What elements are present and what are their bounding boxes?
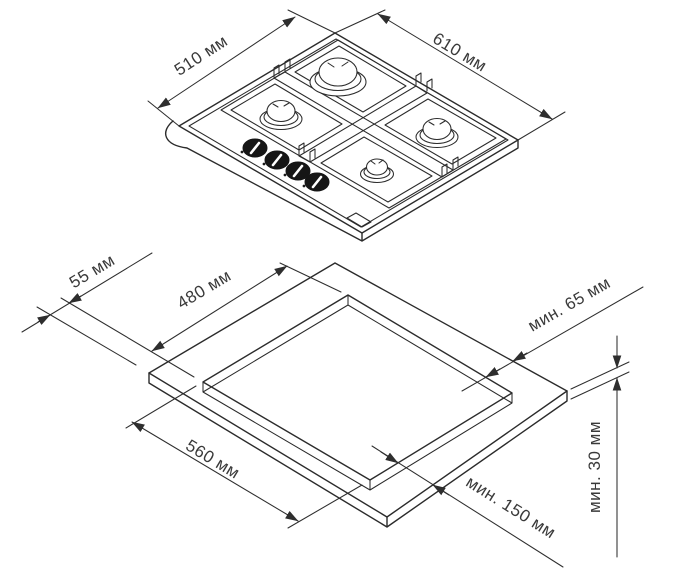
dim-side-clearance: мин. 150 мм <box>372 446 563 567</box>
dim-label-hob-depth: 510 мм <box>171 31 231 79</box>
hob-figure: 510 мм 610 мм <box>148 10 565 241</box>
dim-worktop-thickness: мин. 30 мм <box>571 336 629 557</box>
burner-rear-left-large <box>310 58 366 96</box>
dim-label-cutout-depth: 480 мм <box>174 266 235 313</box>
worktop-cutout-figure: 55 мм 480 мм мин. 65 мм 560 мм мин. <box>22 250 643 567</box>
cutout-inner-walls <box>203 295 512 490</box>
dim-label-rear-clearance: мин. 65 мм <box>525 273 614 335</box>
dim-label-front-offset: 55 мм <box>66 250 118 292</box>
dim-label-hob-width: 610 мм <box>429 29 490 76</box>
dim-hob-width: 610 мм <box>335 10 565 140</box>
burner-rear-right-medium <box>416 119 458 148</box>
burner-front-right-small <box>361 159 394 183</box>
dim-label-side-clearance: мин. 150 мм <box>463 472 560 542</box>
dim-cutout-width: 560 мм <box>126 386 362 528</box>
front-badge <box>347 213 371 227</box>
knob-1 <box>241 139 267 157</box>
knob-2 <box>263 151 289 169</box>
dim-hob-depth: 510 мм <box>148 10 335 126</box>
dim-label-worktop-thickness: мин. 30 мм <box>585 421 604 513</box>
installation-diagram: 510 мм 610 мм 55 мм <box>0 0 682 585</box>
dim-label-cutout-width: 560 мм <box>182 436 243 483</box>
dim-front-offset: 55 мм <box>22 250 194 377</box>
installation-diagram-canvas: 510 мм 610 мм 55 мм <box>0 0 682 585</box>
burner-front-left-medium <box>260 101 302 130</box>
dim-rear-clearance: мин. 65 мм <box>462 273 643 391</box>
cutout-opening <box>203 295 512 480</box>
